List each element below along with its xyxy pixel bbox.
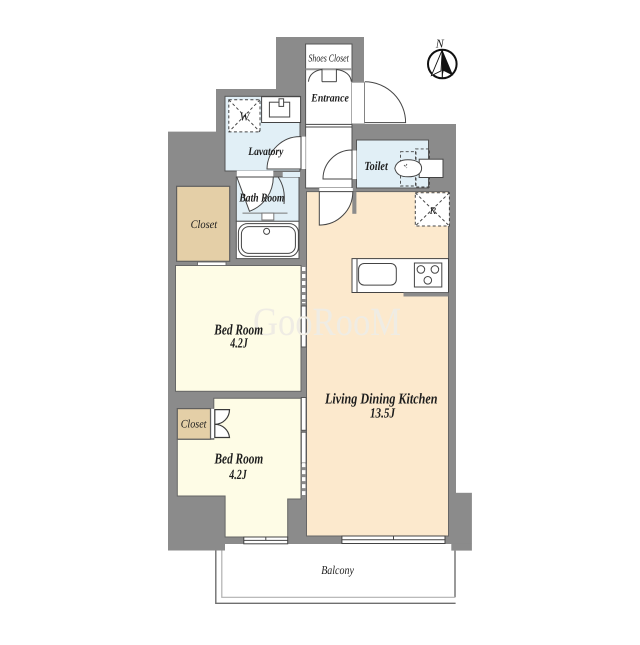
svg-text:Bath Room: Bath Room bbox=[239, 191, 285, 205]
svg-text:Entrance: Entrance bbox=[310, 93, 348, 105]
svg-text:Living Dining Kitchen: Living Dining Kitchen bbox=[324, 392, 437, 408]
svg-text:4.2J: 4.2J bbox=[229, 468, 248, 483]
svg-text:GooRooM: GooRooM bbox=[253, 299, 401, 344]
svg-text:Lavatory: Lavatory bbox=[247, 146, 284, 158]
svg-text:Closet: Closet bbox=[191, 219, 218, 231]
svg-text:W: W bbox=[240, 109, 251, 123]
svg-text:Shoes Closet: Shoes Closet bbox=[309, 53, 350, 64]
svg-text:Toilet: Toilet bbox=[364, 159, 388, 173]
svg-text:4.2J: 4.2J bbox=[229, 337, 248, 352]
svg-text:Closet: Closet bbox=[181, 419, 208, 431]
svg-text:Balcony: Balcony bbox=[321, 563, 354, 577]
svg-text:13.5J: 13.5J bbox=[370, 406, 396, 421]
svg-text:N: N bbox=[435, 37, 445, 51]
svg-text:R: R bbox=[429, 206, 437, 217]
svg-text:Bed Room: Bed Room bbox=[214, 451, 263, 467]
